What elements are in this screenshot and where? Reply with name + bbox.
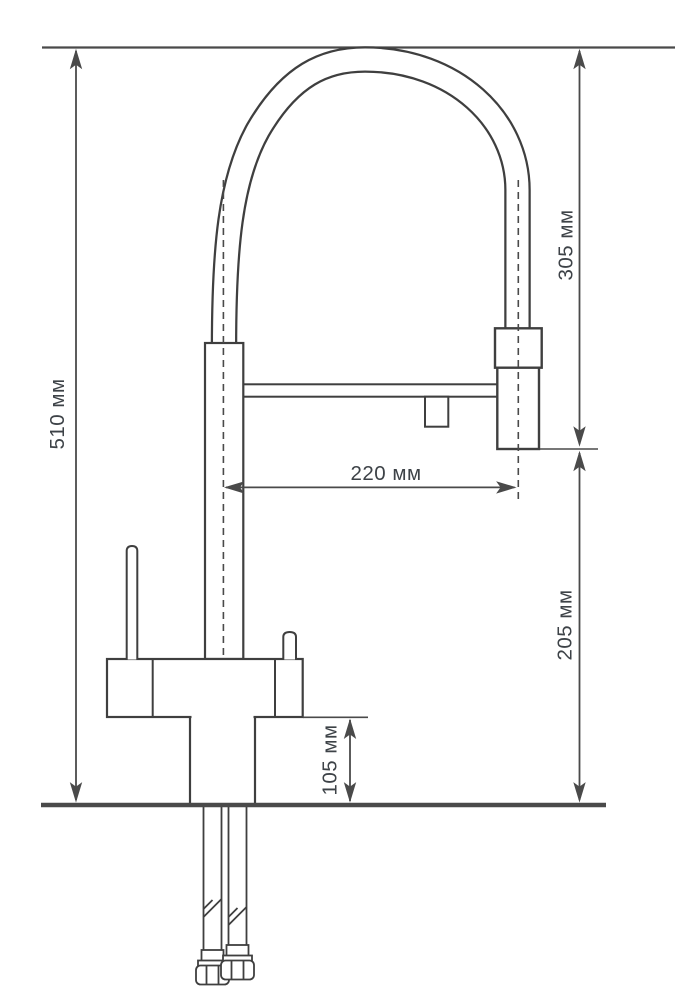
supply-hose-left-walls — [204, 806, 222, 950]
base-column — [190, 716, 255, 805]
extension-lines — [303, 449, 598, 717]
faucet-dimension-drawing: 510 мм 305 мм 205 мм 220 мм 105 мм — [0, 0, 676, 1000]
base-plate — [107, 659, 303, 719]
hose-break-marks-left — [204, 899, 222, 917]
fitting-neck — [227, 945, 249, 956]
right-handle-lever — [283, 632, 296, 660]
drawing-canvas: 510 мм 305 мм 205 мм 220 мм 105 мм — [0, 0, 676, 1000]
dimension-overall-height: 510 мм — [46, 49, 82, 803]
dimension-label-305: 305 мм — [555, 209, 578, 280]
hose-fitting-right — [221, 945, 254, 980]
centerlines — [223, 180, 518, 658]
base-plate-column-junction — [192, 715, 254, 719]
support-arm — [242, 384, 498, 396]
supply-hoses — [204, 806, 247, 950]
dimension-base-height: 105 мм — [319, 719, 357, 803]
dimension-label-220: 220 мм — [350, 462, 421, 485]
flexible-hose — [224, 60, 518, 349]
dimension-label-510: 510 мм — [46, 378, 69, 449]
dimension-hose-arc-height: 305 мм — [555, 49, 586, 447]
base-plate-body — [107, 659, 303, 717]
hose-break-marks-right — [229, 907, 247, 925]
hose-inner-white — [224, 60, 518, 349]
dimension-label-205: 205 мм — [554, 589, 577, 660]
left-handle-lever — [127, 546, 138, 660]
dimension-label-105: 105 мм — [319, 724, 342, 795]
fitting-nut — [221, 961, 254, 980]
dimension-outlet-to-countertop: 205 мм — [554, 451, 586, 803]
hose-holder-block — [425, 397, 448, 427]
fitting-neck — [202, 950, 224, 961]
dimension-spout-reach: 220 мм — [224, 462, 517, 494]
supply-hose-right-walls — [229, 806, 247, 945]
